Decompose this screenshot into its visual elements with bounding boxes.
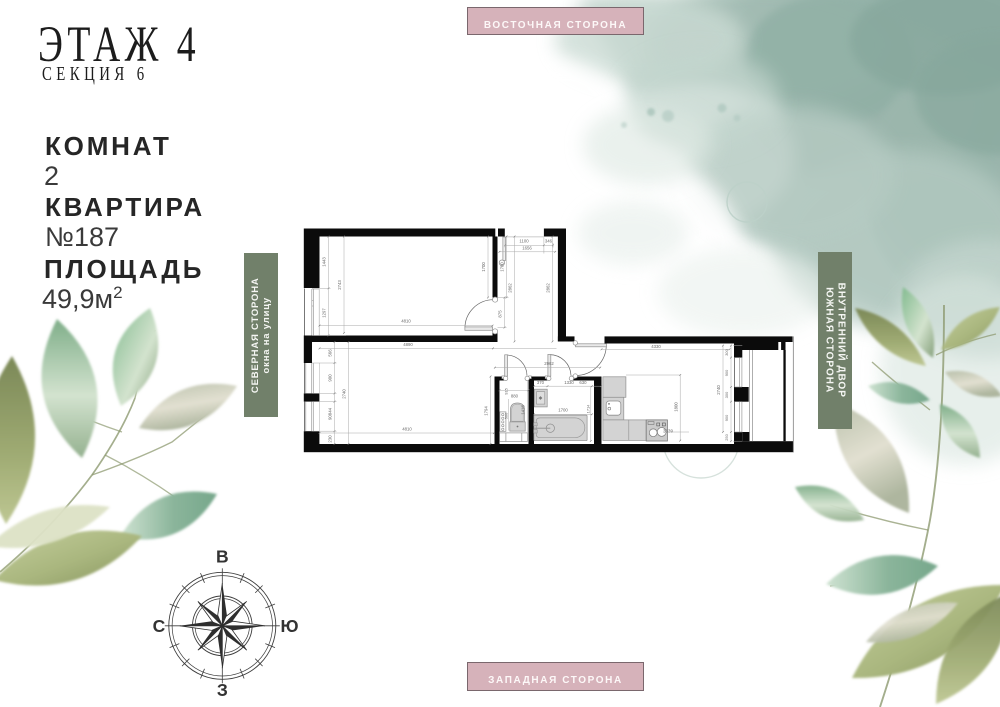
svg-text:900: 900 <box>328 374 333 382</box>
svg-text:1656: 1656 <box>522 245 532 250</box>
svg-text:346: 346 <box>545 238 553 243</box>
svg-text:2743: 2743 <box>337 280 342 290</box>
svg-text:4330: 4330 <box>651 344 661 349</box>
svg-text:250: 250 <box>724 433 729 440</box>
svg-text:1800: 1800 <box>673 402 678 412</box>
svg-text:900: 900 <box>724 414 729 421</box>
svg-text:1418: 1418 <box>521 405 526 415</box>
svg-text:900: 900 <box>724 369 729 376</box>
svg-text:1700: 1700 <box>500 262 505 272</box>
svg-text:1700: 1700 <box>481 262 486 272</box>
svg-text:1100: 1100 <box>519 238 529 243</box>
svg-text:370: 370 <box>537 380 545 385</box>
svg-text:2862: 2862 <box>508 283 513 293</box>
svg-text:В: В <box>216 547 229 567</box>
svg-text:1297: 1297 <box>322 308 327 318</box>
svg-text:1794: 1794 <box>484 406 489 416</box>
svg-text:500: 500 <box>504 412 509 419</box>
svg-text:4810: 4810 <box>402 427 412 432</box>
svg-text:3639: 3639 <box>663 429 674 434</box>
svg-text:1330: 1330 <box>564 380 574 385</box>
svg-text:300: 300 <box>724 391 729 398</box>
svg-text:230: 230 <box>328 435 333 443</box>
svg-text:4810: 4810 <box>401 318 411 323</box>
svg-text:4890: 4890 <box>403 342 413 347</box>
svg-text:Ю: Ю <box>280 616 298 636</box>
svg-text:90844: 90844 <box>328 407 333 420</box>
svg-text:2962: 2962 <box>544 361 554 366</box>
svg-text:630: 630 <box>579 380 587 385</box>
svg-text:300: 300 <box>724 348 729 355</box>
svg-text:2740: 2740 <box>716 385 721 395</box>
svg-text:1443: 1443 <box>322 257 327 267</box>
svg-text:880: 880 <box>511 393 519 398</box>
svg-text:915: 915 <box>504 388 509 395</box>
svg-text:1714: 1714 <box>586 404 591 413</box>
svg-text:566: 566 <box>328 349 333 357</box>
svg-text:875: 875 <box>498 310 503 318</box>
svg-text:2740: 2740 <box>342 389 347 399</box>
svg-text:2862: 2862 <box>546 283 551 293</box>
svg-text:С: С <box>153 616 166 636</box>
svg-text:1700: 1700 <box>558 407 568 412</box>
svg-text:З: З <box>217 680 228 700</box>
